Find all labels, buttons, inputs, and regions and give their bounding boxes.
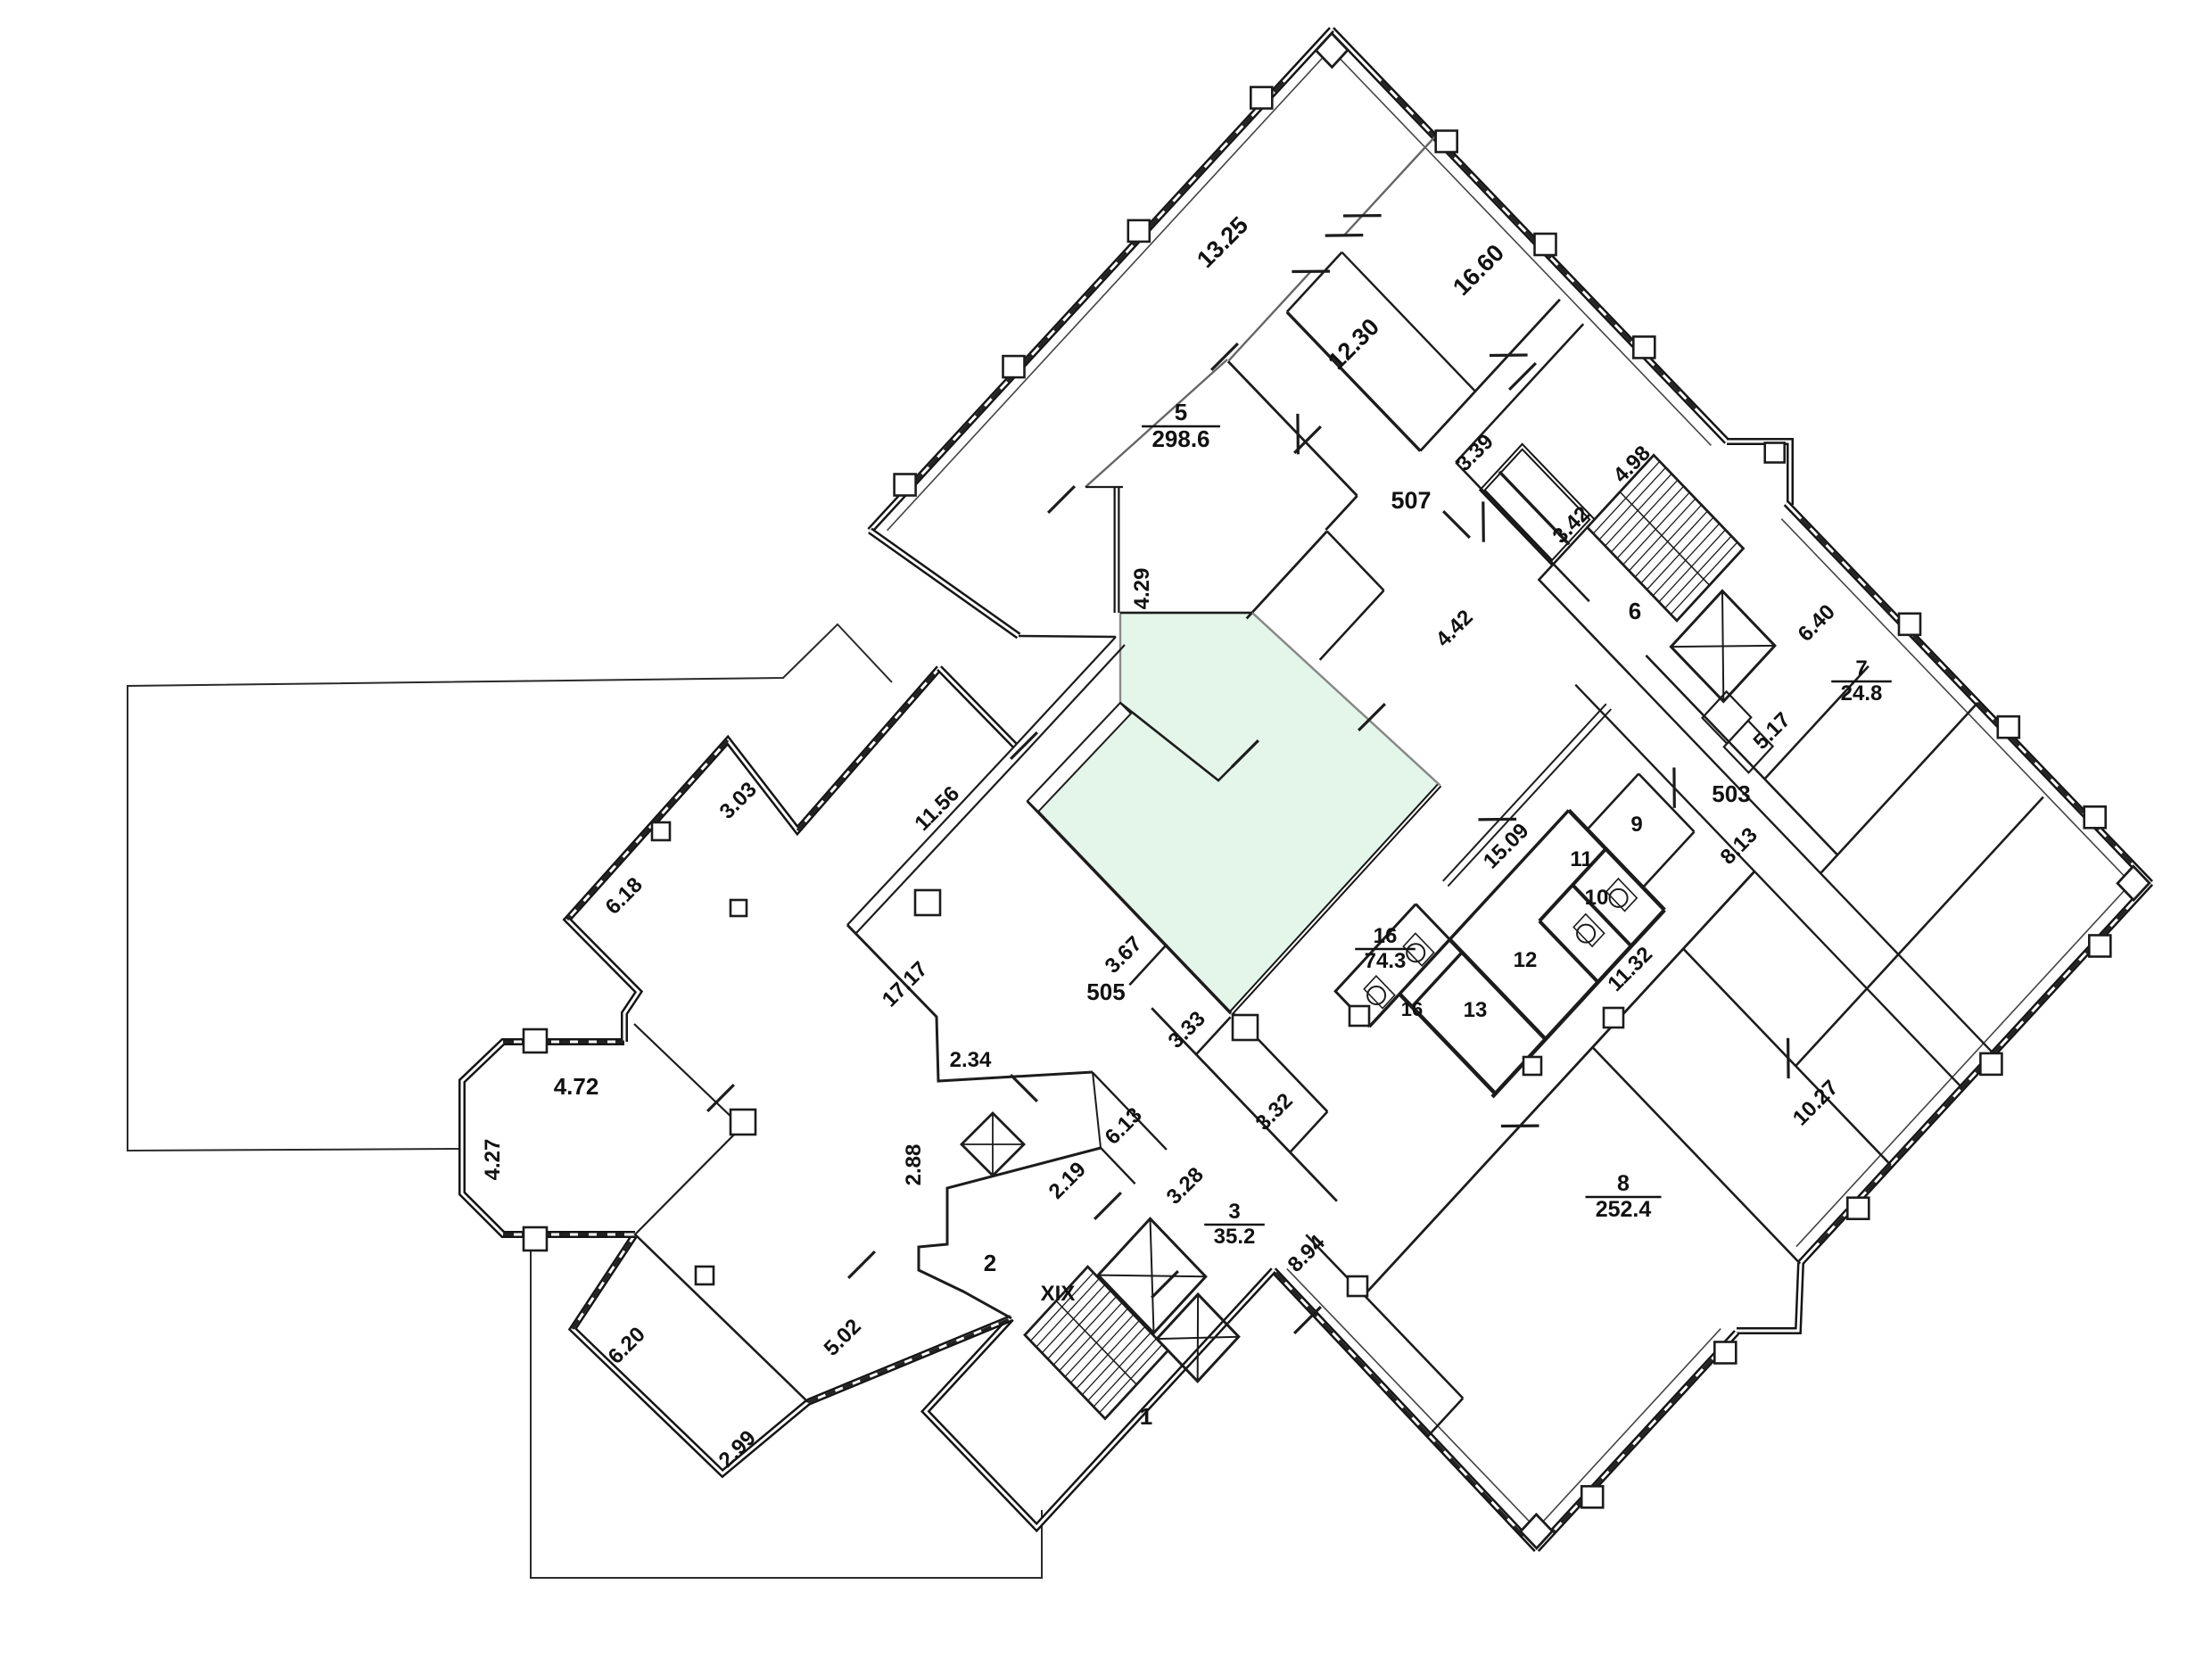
svg-text:13: 13 bbox=[1464, 998, 1488, 1022]
svg-text:8: 8 bbox=[1617, 1171, 1630, 1196]
svg-text:5: 5 bbox=[1175, 399, 1187, 425]
svg-text:4.72: 4.72 bbox=[554, 1073, 599, 1100]
svg-text:2.34: 2.34 bbox=[950, 1048, 992, 1072]
svg-text:16: 16 bbox=[1401, 998, 1423, 1020]
svg-text:505: 505 bbox=[1086, 978, 1125, 1005]
svg-text:4.27: 4.27 bbox=[481, 1139, 505, 1181]
svg-text:2: 2 bbox=[984, 1250, 996, 1276]
svg-text:7: 7 bbox=[1855, 656, 1867, 681]
svg-text:16: 16 bbox=[1374, 924, 1398, 948]
svg-text:4.29: 4.29 bbox=[1130, 568, 1154, 610]
svg-text:507: 507 bbox=[1391, 487, 1431, 514]
svg-text:6: 6 bbox=[1629, 598, 1641, 624]
svg-text:503: 503 bbox=[1712, 780, 1750, 807]
svg-text:XIX: XIX bbox=[1041, 1282, 1076, 1306]
svg-text:9: 9 bbox=[1630, 813, 1642, 837]
svg-text:35.2: 35.2 bbox=[1214, 1225, 1256, 1249]
svg-text:2.88: 2.88 bbox=[902, 1144, 926, 1186]
svg-text:1: 1 bbox=[1140, 1403, 1152, 1430]
svg-text:252.4: 252.4 bbox=[1596, 1197, 1652, 1222]
svg-text:10: 10 bbox=[1585, 886, 1609, 910]
svg-text:24.8: 24.8 bbox=[1841, 681, 1883, 706]
svg-text:3: 3 bbox=[1228, 1200, 1240, 1224]
svg-text:12: 12 bbox=[1514, 948, 1538, 972]
svg-text:11: 11 bbox=[1570, 847, 1592, 871]
svg-text:298.6: 298.6 bbox=[1151, 425, 1209, 452]
svg-text:74.3: 74.3 bbox=[1365, 949, 1407, 973]
